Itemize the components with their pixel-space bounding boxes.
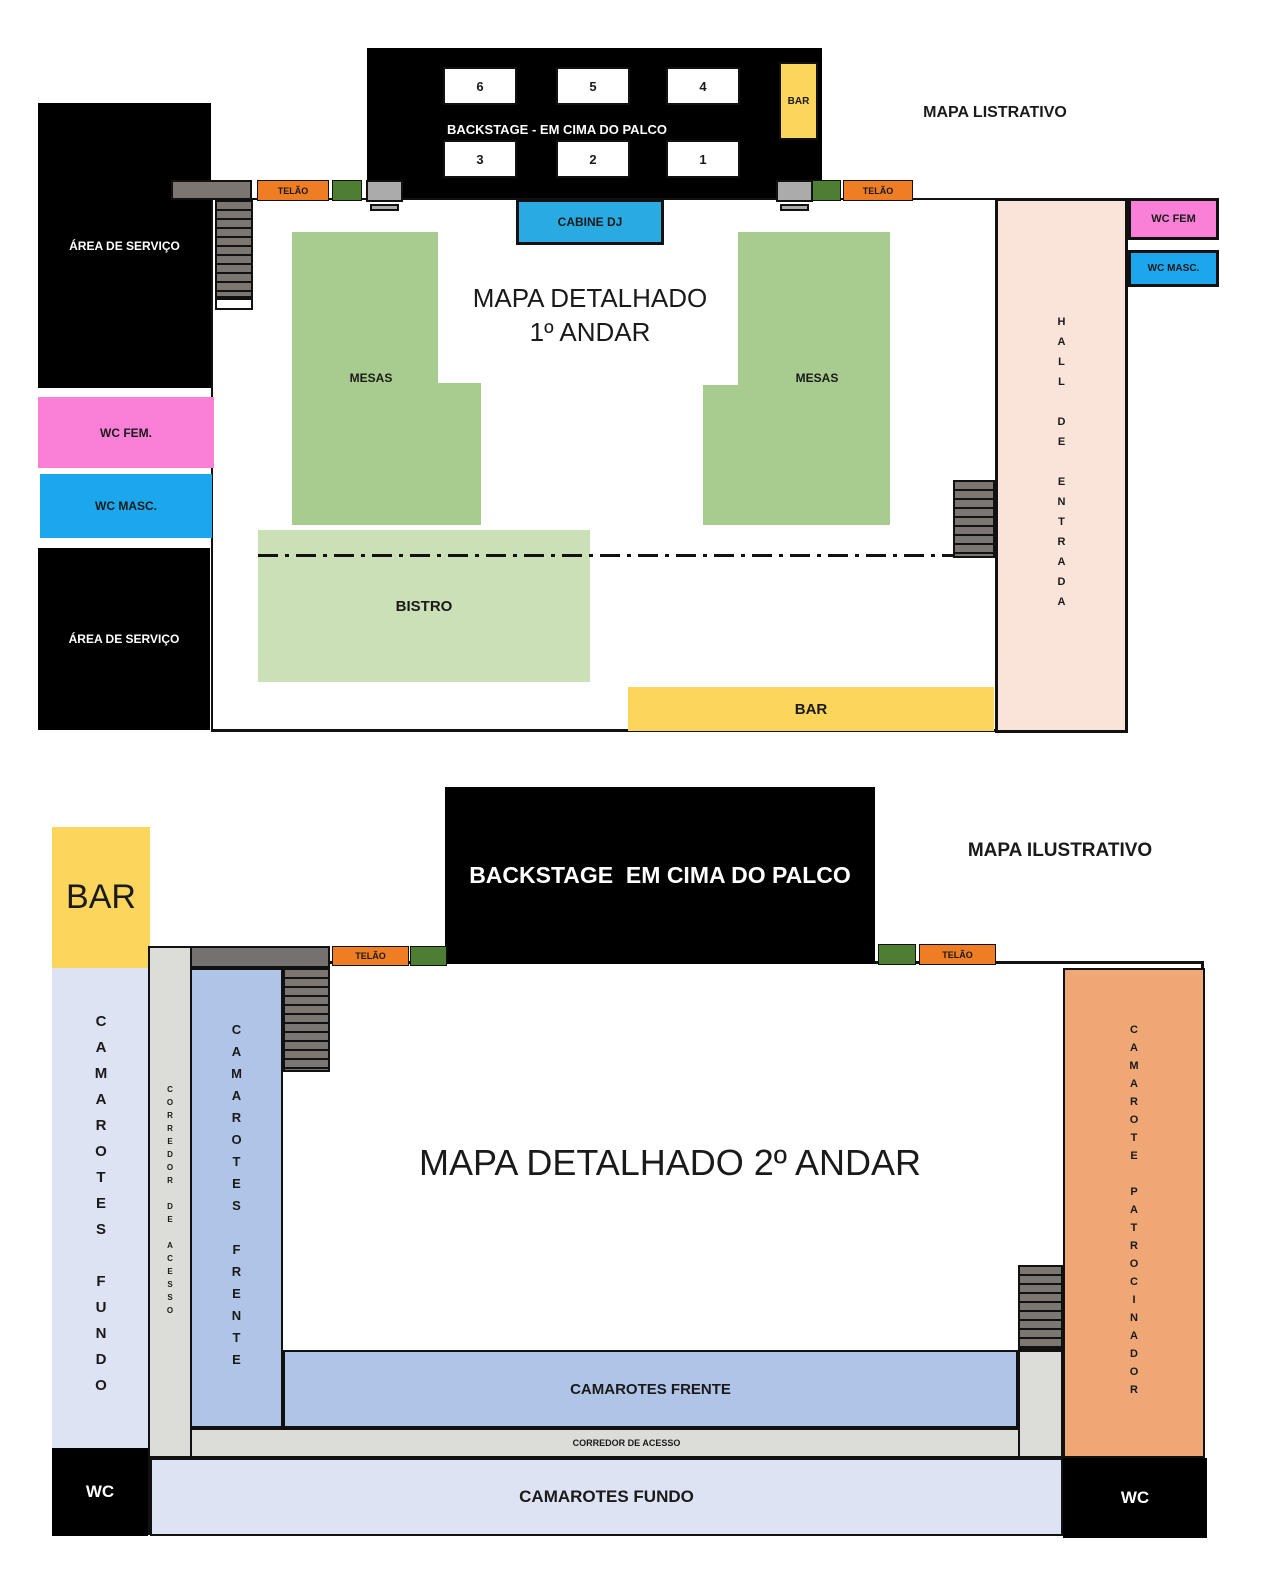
floor2-backstage-label: BACKSTAGE EM CIMA DO PALCO (469, 862, 851, 889)
cabine-dj: CABINE DJ (516, 199, 664, 245)
floor2-wc-right-label: WC (1121, 1488, 1149, 1508)
stage-box-2: 2 (556, 140, 630, 178)
floor2-green-left (410, 946, 447, 966)
stage-box-1: 1 (666, 140, 740, 178)
floor2-stairs-right (1018, 1265, 1063, 1350)
stage-box-4-label: 4 (699, 79, 706, 94)
camarotes-frente-column-label: CAMAROTES FRENTE (229, 1022, 244, 1374)
floor2-wc-right: WC (1063, 1458, 1207, 1538)
floor1-bar-bottom: BAR (628, 687, 994, 731)
floor2-bar-label: BAR (66, 878, 136, 917)
wc-fem-right: WC FEM (1128, 198, 1219, 240)
stage-backstage: 6 5 4 BACKSTAGE - EM CIMA DO PALCO 3 2 1… (367, 48, 822, 198)
corredor-acesso-column-label: CORREDOR DE ACESSO (166, 1085, 175, 1319)
floor2-watermark: MAPA ILUSTRATIVO (930, 840, 1190, 862)
floor1-watermark: MAPA LISTRATIVO (870, 104, 1120, 122)
floor2-stairs-left (283, 968, 330, 1072)
stage-box-3: 3 (443, 140, 517, 178)
entrance-hall-label: HALL DE ENTRADA (1056, 316, 1068, 616)
telao-left: TELÃO (257, 180, 329, 201)
stairs-hall (953, 480, 995, 558)
stage-box-1-label: 1 (699, 152, 706, 167)
venue-floor-plans: ÁREA DE SERVIÇO WC FEM. WC MASC. ÁREA DE… (0, 0, 1264, 1574)
camarotes-frente-band: CAMAROTES FRENTE (283, 1350, 1018, 1428)
floor2-green-right (878, 944, 916, 965)
wc-masc-left: WC MASC. (40, 474, 212, 538)
service-area-bottom: ÁREA DE SERVIÇO (38, 548, 210, 730)
cabine-dj-label: CABINE DJ (558, 215, 623, 229)
floor2-stairs-landing-left (190, 946, 330, 968)
telao-right-label: TELÃO (863, 186, 894, 196)
stage-bar-label: BAR (788, 96, 810, 107)
stage-box-3-label: 3 (476, 152, 483, 167)
stage-box-5: 5 (556, 67, 630, 105)
wc-masc-right-label: WC MASC. (1148, 263, 1200, 274)
floor2-telao-right-label: TELÃO (942, 950, 973, 960)
floor2-telao-right: TELÃO (919, 944, 996, 965)
mesas-left-upper (292, 232, 438, 383)
floor1-map: ÁREA DE SERVIÇO WC FEM. WC MASC. ÁREA DE… (0, 0, 1264, 760)
entrance-hall: HALL DE ENTRADA (995, 198, 1128, 733)
service-area-top-label: ÁREA DE SERVIÇO (69, 239, 180, 253)
speaker-stack-right (776, 180, 813, 202)
stairs-left (215, 200, 253, 298)
floor1-title-line1: MAPA DETALHADO (380, 281, 800, 315)
telao-right: TELÃO (843, 180, 913, 201)
mesas-left-label: MESAS (350, 371, 393, 385)
mesas-right-label-wrap: MESAS (742, 368, 892, 388)
floor1-title-line2: 1º ANDAR (380, 315, 800, 349)
bistro-label: BISTRO (396, 598, 453, 615)
stage-box-5-label: 5 (589, 79, 596, 94)
floor1-bar-bottom-label: BAR (795, 701, 828, 718)
floor2-bar: BAR (52, 827, 150, 968)
stairs-landing-left (171, 180, 252, 200)
wc-fem-left-label: WC FEM. (100, 426, 152, 440)
floor2-wc-left: WC (52, 1448, 148, 1536)
floor2-telao-left-label: TELÃO (355, 951, 386, 961)
mesas-left-lower (292, 383, 481, 525)
mesas-right-upper (738, 232, 890, 385)
speaker-green-right (812, 180, 841, 201)
stage-bar: BAR (779, 62, 818, 140)
stage-box-6: 6 (443, 67, 517, 105)
service-area-bottom-label: ÁREA DE SERVIÇO (69, 632, 180, 646)
stage-box-6-label: 6 (476, 79, 483, 94)
floor1-title: MAPA DETALHADO 1º ANDAR (380, 281, 800, 349)
speaker-stack-left-base (370, 204, 399, 211)
stairs-left-foot (215, 298, 253, 310)
stage-box-4: 4 (666, 67, 740, 105)
speaker-green-left (332, 180, 362, 201)
floor2-telao-left: TELÃO (332, 946, 409, 966)
camarote-patrocinador-column: CAMAROTE PATROCINADOR (1063, 968, 1205, 1458)
camarotes-frente-column: CAMAROTES FRENTE (190, 968, 283, 1428)
camarotes-fundo-column-label: CAMAROTES FUNDO (93, 1013, 110, 1403)
camarotes-fundo-band: CAMAROTES FUNDO (150, 1458, 1063, 1536)
speaker-stack-right-base (780, 204, 809, 211)
stage-label: BACKSTAGE - EM CIMA DO PALCO (447, 122, 667, 137)
corredor-right-segment (1018, 1350, 1063, 1458)
wc-masc-right: WC MASC. (1128, 250, 1219, 287)
sector-divider-line (258, 554, 993, 557)
wc-masc-left-label: WC MASC. (95, 499, 157, 513)
stage-label-wrap: BACKSTAGE - EM CIMA DO PALCO (367, 118, 747, 140)
stage-box-2-label: 2 (589, 152, 596, 167)
wc-fem-left: WC FEM. (38, 397, 214, 468)
bistro: BISTRO (258, 530, 590, 682)
camarotes-frente-band-label: CAMAROTES FRENTE (570, 1381, 731, 1398)
camarotes-fundo-band-label: CAMAROTES FUNDO (519, 1487, 694, 1507)
floor2-title: MAPA DETALHADO 2º ANDAR (340, 1142, 1000, 1184)
camarotes-fundo-column: CAMAROTES FUNDO (52, 968, 150, 1448)
corredor-acesso-band: CORREDOR DE ACESSO (190, 1428, 1063, 1458)
mesas-left-label-wrap: MESAS (296, 368, 446, 388)
floor2-wc-left-label: WC (86, 1482, 114, 1502)
wc-fem-right-label: WC FEM (1151, 213, 1196, 225)
corredor-acesso-band-label: CORREDOR DE ACESSO (573, 1438, 681, 1448)
mesas-right-lower (703, 385, 890, 525)
telao-left-label: TELÃO (278, 186, 309, 196)
floor2-backstage: BACKSTAGE EM CIMA DO PALCO (445, 787, 875, 964)
corredor-acesso-column: CORREDOR DE ACESSO (148, 946, 192, 1458)
floor2-map: BACKSTAGE EM CIMA DO PALCO TELÃO TELÃO M… (0, 760, 1264, 1574)
camarote-patrocinador-label: CAMAROTE PATROCINADOR (1128, 1024, 1140, 1402)
mesas-right-label: MESAS (796, 371, 839, 385)
service-area-top: ÁREA DE SERVIÇO (38, 103, 211, 388)
speaker-stack-left (366, 180, 403, 202)
